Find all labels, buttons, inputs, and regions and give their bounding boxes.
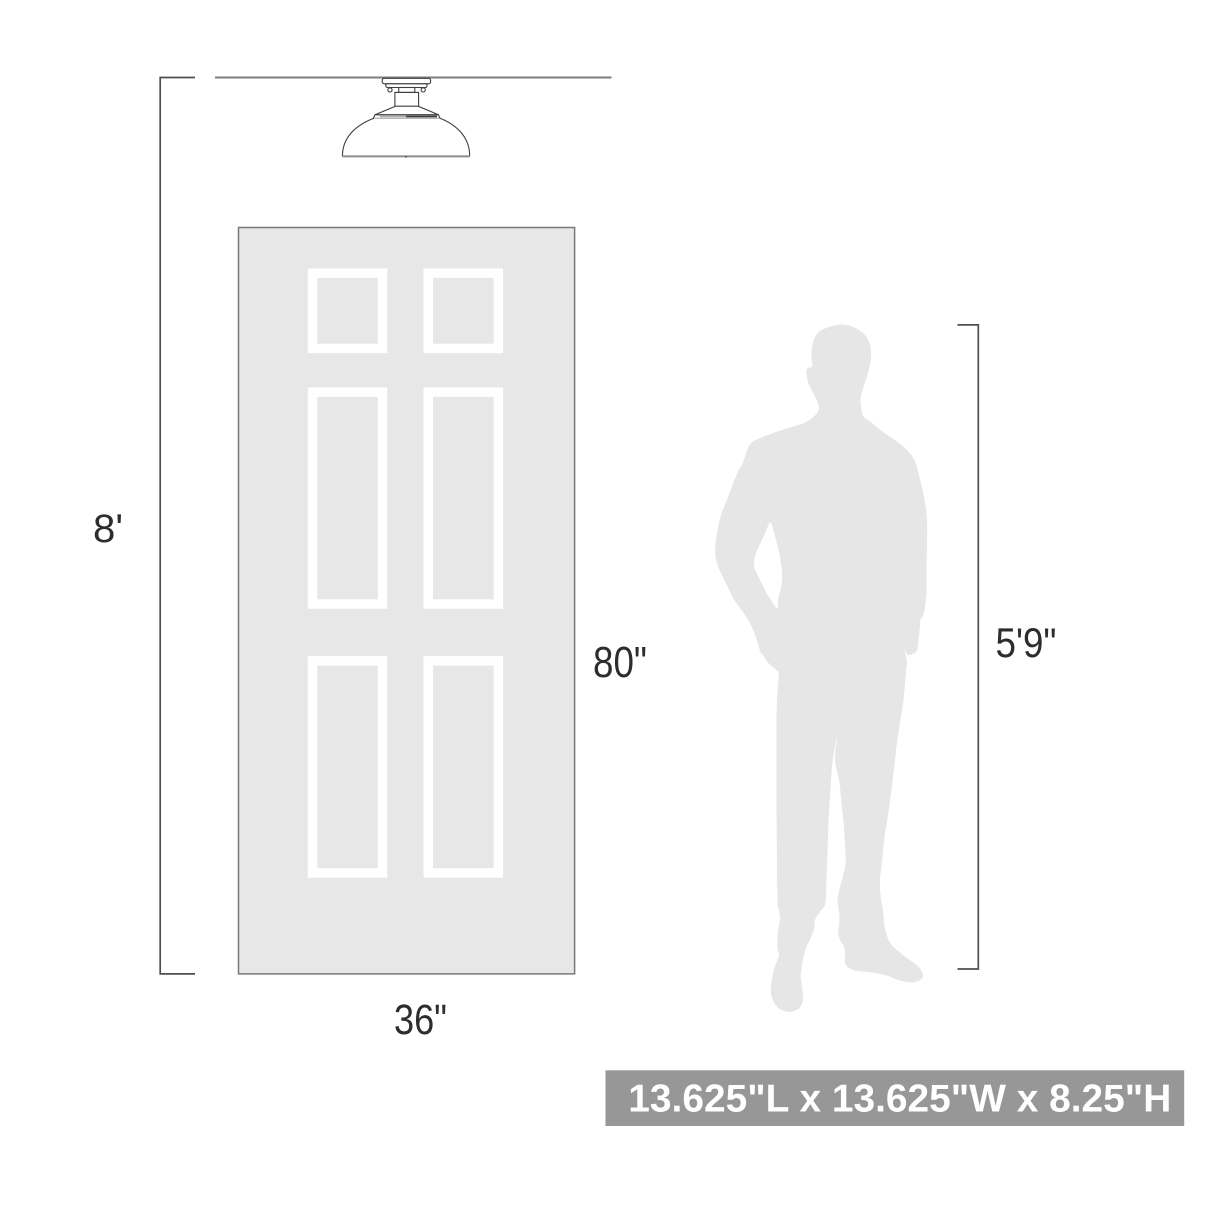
svg-text:80": 80" — [593, 638, 647, 687]
svg-text:5'9": 5'9" — [996, 619, 1057, 666]
svg-text:36": 36" — [394, 996, 447, 1044]
svg-text:13.625"L x 13.625"W x 8.25"H: 13.625"L x 13.625"W x 8.25"H — [628, 1078, 1171, 1121]
svg-text:8': 8' — [93, 507, 123, 551]
